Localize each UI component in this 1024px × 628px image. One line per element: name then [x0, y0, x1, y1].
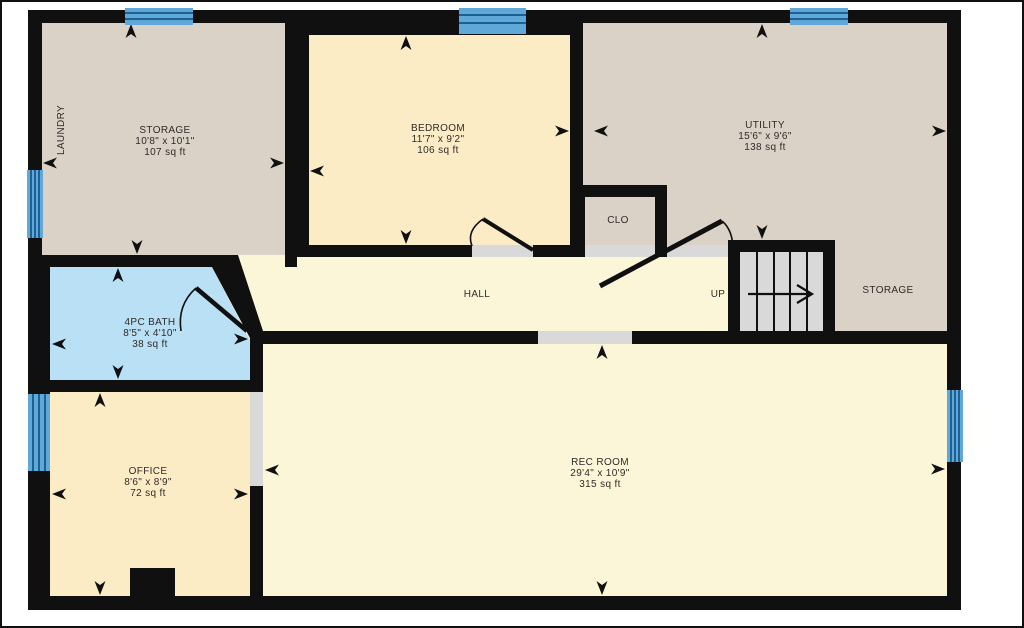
wall-segment	[28, 255, 218, 267]
staircase	[740, 252, 823, 331]
office-area: 72 sq ft	[130, 488, 166, 499]
storage-left-name: STORAGE	[139, 125, 190, 136]
hall-label: HALL	[464, 289, 491, 300]
chimney-bump	[130, 568, 175, 598]
laundry-window-left	[27, 170, 43, 238]
storage-left-area: 107 sq ft	[144, 147, 186, 158]
wall-segment	[728, 240, 835, 252]
rec-room-area: 315 sq ft	[579, 479, 621, 490]
storage-left-dims: 10'8" x 10'1"	[135, 136, 194, 147]
wall-segment	[728, 240, 740, 344]
wall-segment	[573, 185, 585, 257]
rec-room-name: REC ROOM	[571, 457, 629, 468]
bedroom-name: BEDROOM	[411, 123, 465, 134]
rec-room-dims: 29'4" x 10'9"	[570, 468, 629, 479]
bedroom-area: 106 sq ft	[417, 145, 459, 156]
bath-area: 38 sq ft	[132, 339, 168, 350]
wall-segment	[28, 380, 263, 392]
wall-segment	[285, 23, 297, 267]
laundry-label: LAUNDRY	[56, 105, 67, 155]
rec-room-window-right	[947, 390, 963, 462]
office-name: OFFICE	[129, 466, 168, 477]
wall-segment	[947, 10, 961, 610]
office-dims: 8'6" x 8'9"	[124, 477, 172, 488]
bedroom-door-opening	[472, 245, 533, 257]
floor-plan-drawing: STORAGE 10'8" x 10'1" 107 sq ft BEDROOM …	[0, 0, 1024, 628]
office-rec-opening	[250, 392, 263, 486]
utility-dims: 15'6" x 9'6"	[738, 131, 792, 142]
office-window-left	[28, 394, 50, 471]
wall-segment	[297, 23, 309, 257]
closet-door-opening	[585, 245, 655, 257]
closet-label: CLO	[607, 215, 629, 226]
bedroom-dims: 11'7" x 9'2"	[412, 134, 465, 145]
wall-segment	[28, 596, 961, 610]
wall-segment	[655, 185, 667, 257]
bath-name: 4PC BATH	[125, 317, 176, 328]
utility-window-top	[790, 8, 848, 25]
bath-dims: 8'5" x 4'10"	[123, 328, 177, 339]
stairs-up-label: UP	[711, 289, 726, 300]
storage-window-top	[125, 8, 193, 25]
floor-plan-page: STORAGE 10'8" x 10'1" 107 sq ft BEDROOM …	[0, 0, 1024, 628]
wall-segment	[297, 23, 583, 35]
wall-segment	[573, 185, 667, 197]
stair-treads	[740, 252, 823, 331]
utility-area: 138 sq ft	[744, 142, 786, 153]
wall-segment	[823, 240, 835, 344]
storage-right-label: STORAGE	[862, 285, 913, 296]
bedroom-window-top	[459, 8, 526, 34]
hall-rec-opening	[538, 331, 632, 344]
utility-name: UTILITY	[745, 120, 785, 131]
